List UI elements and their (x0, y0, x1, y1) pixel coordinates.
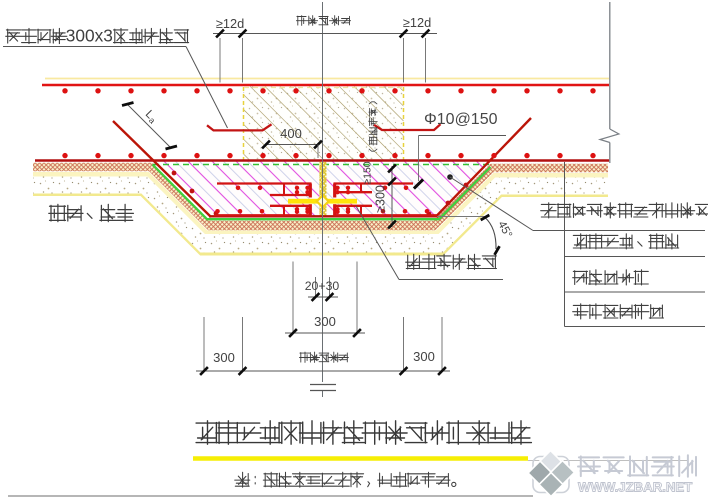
svg-text:≥300: ≥300 (374, 185, 388, 213)
svg-text:400: 400 (280, 126, 302, 141)
svg-text:20+30: 20+30 (305, 279, 340, 293)
svg-text:≥12d: ≥12d (216, 16, 244, 31)
svg-text:300: 300 (314, 314, 336, 329)
svg-text:≥12d: ≥12d (403, 15, 431, 30)
svg-text:WWW.JZBAR.NET: WWW.JZBAR.NET (578, 480, 692, 495)
svg-text:≥150: ≥150 (362, 161, 374, 184)
svg-text:300: 300 (413, 349, 435, 364)
svg-text:Φ10@150: Φ10@150 (424, 111, 498, 128)
svg-text:300x3: 300x3 (66, 25, 113, 45)
svg-text:300: 300 (213, 350, 235, 365)
